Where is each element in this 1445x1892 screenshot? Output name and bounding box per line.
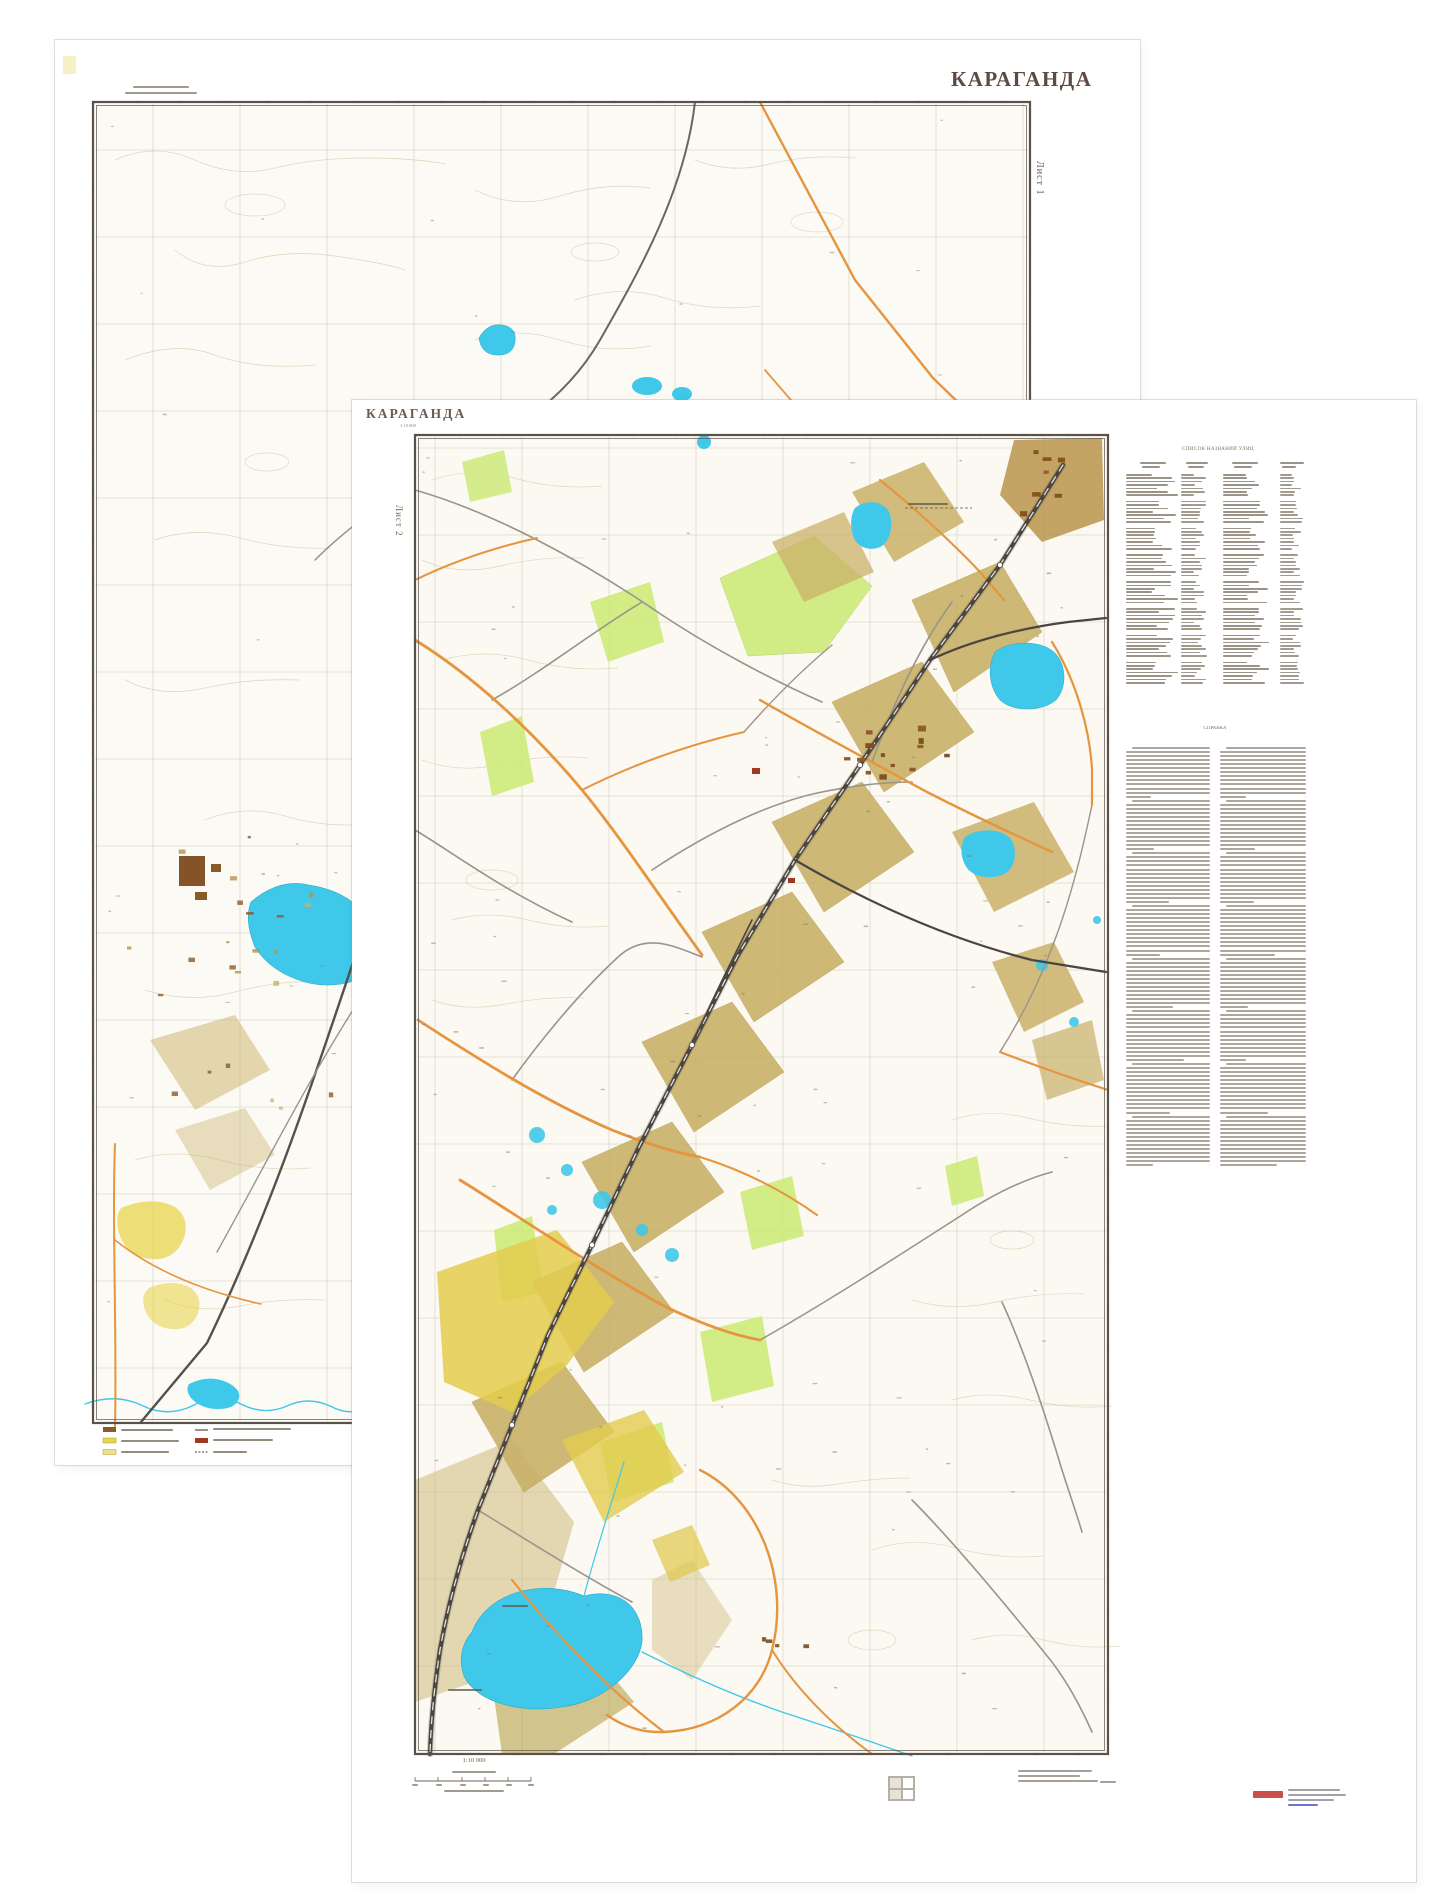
sheet2-scale-subtitle: 1:10 000 [380,423,436,428]
map-sheet-2: КАРАГАНДА 1:10 000 Лист 2 СПИСОК НАЗВАНИ… [352,400,1416,1882]
sheet2-map-graphic [352,400,1416,1882]
scale-text: 1:10 000 [444,1757,504,1764]
diagram-cell [902,1777,915,1789]
street-index-title: СПИСОК НАЗВАНИЙ УЛИЦ [1158,447,1278,452]
sheet-layout-diagram [888,1776,915,1801]
diagram-cell [902,1789,915,1801]
scanned-map-page: КАРАГАНДА Лист 1 КАРАГАНДА 1:10 000 Лист… [0,0,1445,1892]
diagram-cell [889,1789,902,1801]
sheet1-title: КАРАГАНДА [951,67,1092,92]
diagram-cell [889,1777,902,1789]
sheet1-number-label: Лист 1 [1034,161,1045,195]
sheet2-number-label: Лист 2 [394,505,404,537]
sheet2-title: КАРАГАНДА [366,406,466,422]
reference-heading: СПРАВКА [1185,726,1245,731]
